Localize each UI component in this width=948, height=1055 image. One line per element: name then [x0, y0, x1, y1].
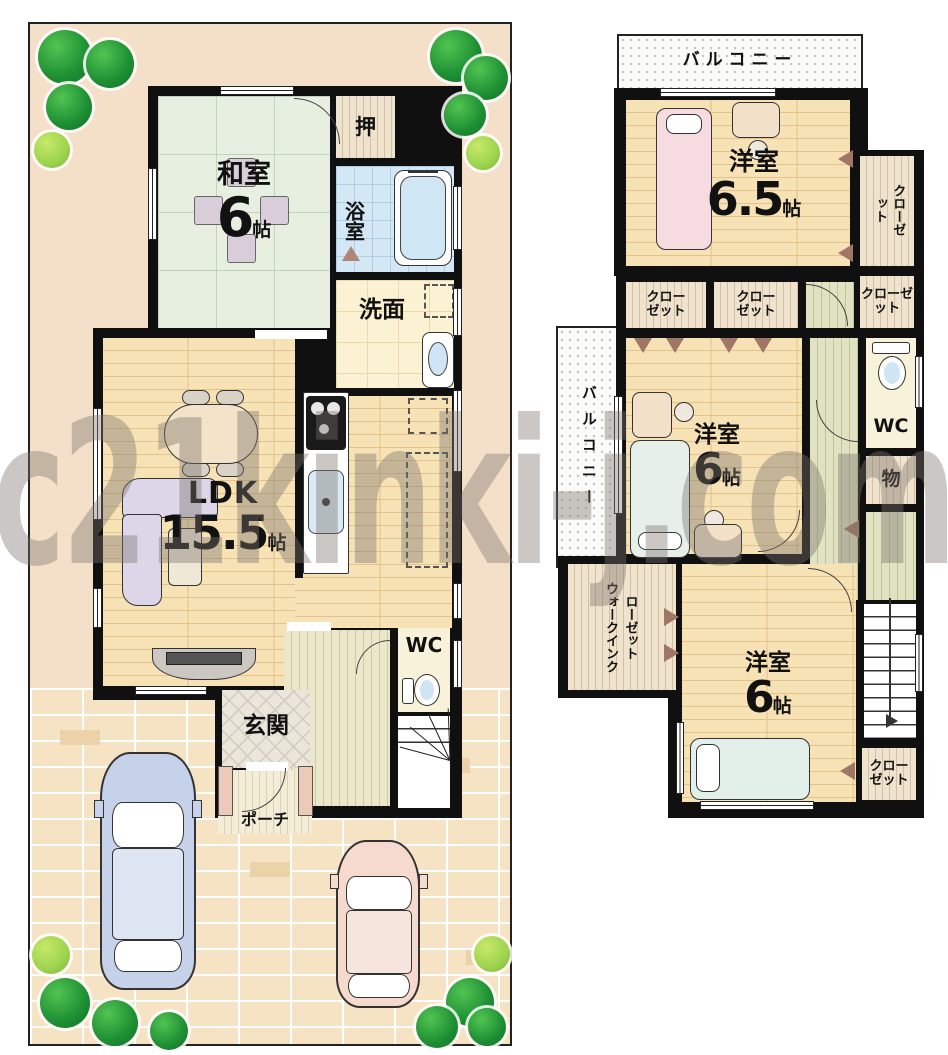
car-rear-window [348, 974, 410, 998]
washbasin-bowl [428, 342, 448, 376]
window [93, 408, 102, 520]
folding-door-icon [754, 338, 772, 353]
folding-door-icon [634, 338, 652, 353]
room-label-senmen: 洗面 [336, 290, 428, 330]
folding-door-icon [720, 338, 738, 353]
room-size: 6 [693, 447, 722, 493]
tv-screen [166, 652, 242, 665]
room-unit: 帖 [252, 221, 271, 241]
bathtub-inner [400, 176, 446, 260]
room-label-oshiire: 押 [336, 96, 395, 158]
label-closet-b: クローゼット [714, 284, 798, 326]
window [453, 640, 462, 688]
folding-door-icon [840, 762, 855, 780]
car-roof [112, 848, 184, 940]
label-closet-stairs: クローゼット [862, 752, 916, 796]
room-name: バルコニー [580, 385, 596, 515]
room-unit: 帖 [267, 534, 286, 554]
folding-door-icon [664, 608, 679, 626]
label-closet-tall: クローゼット [866, 182, 910, 238]
room-name: WC [406, 635, 443, 656]
toilet-bowl-inner [884, 362, 900, 384]
bed-pillow [666, 114, 702, 134]
brick-accent [250, 862, 290, 877]
room-name: クローゼット [733, 291, 779, 318]
car-mirror [192, 800, 202, 818]
label-balcony-top: バルコニー [617, 44, 863, 78]
hallway-2f [810, 338, 858, 600]
car-blue [100, 752, 196, 990]
side-table [694, 524, 742, 558]
room-label-bath: 浴室 [338, 176, 368, 266]
stove-burner [327, 402, 340, 415]
label-balcony-left: バルコニー [574, 352, 602, 548]
porch-pillar [298, 766, 313, 816]
room-name: 浴室 [343, 201, 364, 241]
stairs-2f-rail [889, 598, 891, 718]
dining-chair [216, 390, 244, 405]
folding-door-icon [664, 644, 679, 662]
room-size: 6 [744, 675, 773, 721]
room-size: 6.5 [707, 175, 783, 223]
dining-chair [182, 390, 210, 405]
folding-door-icon [666, 338, 684, 353]
window [915, 634, 923, 692]
tree [38, 30, 92, 84]
tree [40, 978, 90, 1028]
refrigerator [408, 398, 448, 434]
tree [474, 936, 510, 972]
window [453, 583, 462, 619]
room-label-ldk: LDK 15.5帖 [148, 468, 298, 568]
tree [150, 1012, 188, 1050]
window [676, 722, 684, 794]
stove-burner [319, 424, 329, 434]
room-name: クローゼット [860, 288, 914, 315]
toilet-tank [872, 342, 910, 354]
desk [732, 102, 780, 138]
room-label-yoshitsu-6-btm: 洋室 6帖 [706, 644, 830, 728]
hallway-2f-right [866, 512, 916, 600]
stove-burner [311, 402, 324, 415]
room-label-wc-1f: WC [398, 632, 450, 658]
room-size: 6 [217, 190, 253, 247]
room-label-porch: ポーチ [218, 810, 312, 830]
room-name: 押 [355, 116, 376, 138]
room-name: クローゼット [866, 760, 912, 787]
window [453, 186, 462, 250]
tree [34, 132, 70, 168]
tree [32, 936, 70, 974]
window [614, 396, 623, 514]
bed-pillow [696, 744, 720, 792]
folding-door-icon [838, 150, 853, 168]
room-label-washitsu: 和室 6帖 [184, 148, 304, 260]
car-roof [346, 910, 412, 974]
tree [466, 136, 500, 170]
folding-door-icon [844, 520, 859, 538]
window [93, 588, 102, 628]
label-closet-a: クローゼット [626, 284, 706, 326]
room-unit: 帖 [722, 469, 741, 489]
car-rear-window [114, 940, 182, 972]
car-windshield [346, 876, 412, 910]
car-pink [336, 840, 420, 1008]
room-name: ウォークインクローゼット [601, 579, 640, 675]
car-mirror [94, 800, 104, 818]
room-name: 物 [881, 470, 900, 490]
tree [444, 94, 486, 136]
car-mirror [419, 874, 428, 889]
room-label-yoshitsu-6-mid: 洋室 6帖 [652, 416, 782, 500]
window [700, 801, 814, 810]
bath-faucet [408, 170, 438, 173]
window [220, 86, 294, 95]
tree [86, 40, 134, 88]
window [660, 88, 776, 97]
room-name: クローゼット [870, 184, 906, 236]
window [453, 288, 462, 336]
tree [416, 1006, 458, 1048]
window [148, 168, 157, 240]
car-mirror [330, 874, 339, 889]
car-windshield [112, 802, 184, 848]
room-unit: 帖 [773, 697, 792, 717]
window [915, 356, 923, 408]
washing-machine [424, 284, 454, 318]
room-label-yoshitsu-65: 洋室 6.5帖 [692, 140, 816, 232]
stairs-direction-arrow [886, 714, 898, 728]
sink-faucet [322, 498, 330, 506]
toilet-tank [402, 678, 414, 704]
label-walk-in-closet: ウォークインクローゼット [598, 576, 642, 678]
toilet-bowl-inner [420, 680, 434, 700]
tree [46, 84, 92, 130]
dining-table [164, 404, 258, 464]
folding-door-icon [838, 244, 853, 262]
porch-pillar [218, 766, 233, 816]
wall-notch [868, 88, 924, 150]
room-name: ポーチ [241, 812, 289, 829]
room-name: LDK [188, 478, 258, 510]
cupboard [406, 452, 448, 568]
window [135, 686, 207, 695]
window [453, 390, 462, 472]
room-label-genkan: 玄関 [222, 708, 310, 744]
room-unit: 帖 [782, 200, 801, 220]
sliding-door-opening [255, 330, 327, 339]
tree [464, 56, 508, 100]
room-name: 玄関 [243, 714, 289, 738]
room-size: 15.5 [160, 509, 268, 558]
room-name: 洗面 [359, 298, 405, 322]
tree [92, 1000, 138, 1046]
tree [468, 1008, 506, 1046]
label-storage-mono: 物 [866, 460, 916, 500]
bed-pillow [638, 532, 682, 550]
room-label-wc-2f: WC [866, 414, 916, 440]
floor-plan-canvas: 和室 6帖 押 浴室 洗面 LDK 15.5帖 WC 玄関 ポーチ [0, 0, 948, 1055]
brick-accent [60, 730, 100, 745]
hall-opening [287, 622, 331, 631]
room-name: クローゼット [643, 291, 689, 318]
room-name: WC [874, 417, 909, 437]
label-closet-small: クローゼット [860, 280, 914, 324]
room-name: バルコニー [683, 52, 798, 70]
